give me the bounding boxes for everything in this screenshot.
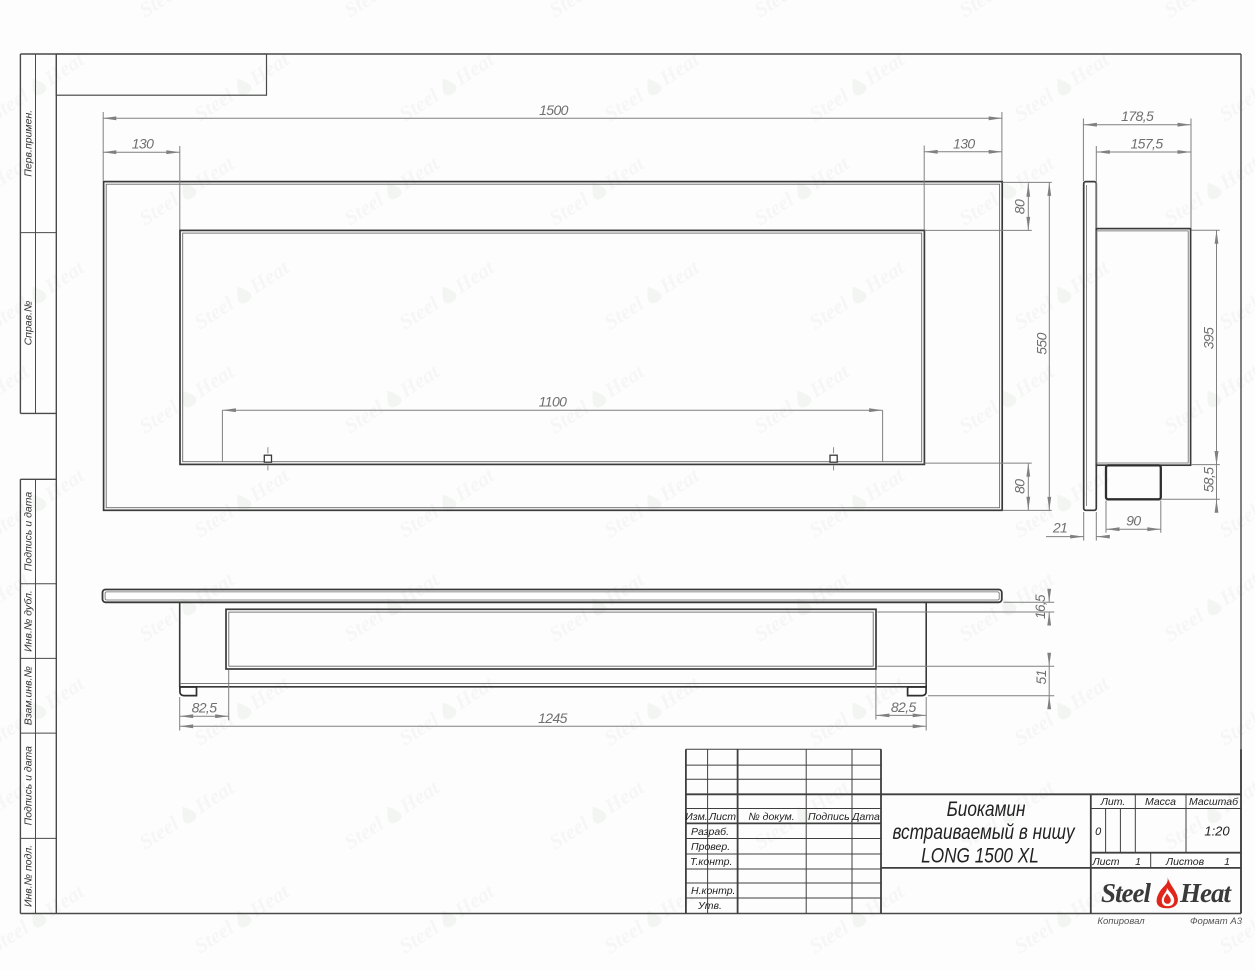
svg-text:Перв.примен.: Перв.примен. bbox=[23, 110, 35, 177]
svg-text:Подпись и дата: Подпись и дата bbox=[23, 746, 35, 826]
svg-text:№ докум.: № докум. bbox=[748, 811, 794, 823]
svg-text:1100: 1100 bbox=[539, 394, 568, 410]
svg-text:0: 0 bbox=[1095, 826, 1102, 838]
svg-text:Провер.: Провер. bbox=[691, 841, 730, 853]
svg-text:Лист: Лист bbox=[1091, 856, 1119, 868]
svg-text:Биокамин: Биокамин bbox=[947, 799, 1026, 822]
svg-text:Heat: Heat bbox=[1179, 878, 1232, 908]
svg-text:395: 395 bbox=[1200, 327, 1216, 349]
svg-text:Формат А3: Формат А3 bbox=[1190, 916, 1243, 927]
svg-text:21: 21 bbox=[1052, 520, 1067, 536]
svg-text:Взам.инв.№: Взам.инв.№ bbox=[23, 666, 35, 725]
svg-text:Лист: Лист bbox=[708, 811, 736, 823]
svg-text:80: 80 bbox=[1011, 199, 1027, 214]
svg-text:82,5: 82,5 bbox=[192, 700, 218, 716]
svg-text:550: 550 bbox=[1034, 332, 1050, 354]
svg-text:Масса: Масса bbox=[1145, 796, 1176, 808]
svg-text:Steel: Steel bbox=[1101, 878, 1151, 908]
svg-text:130: 130 bbox=[132, 136, 154, 152]
svg-text:130: 130 bbox=[953, 135, 975, 151]
svg-text:90: 90 bbox=[1126, 513, 1141, 529]
svg-text:Масштаб: Масштаб bbox=[1189, 796, 1239, 808]
svg-text:встраиваемый в нишу: встраиваемый в нишу bbox=[892, 822, 1075, 845]
svg-text:1: 1 bbox=[1224, 856, 1230, 868]
svg-text:1: 1 bbox=[1135, 856, 1141, 868]
svg-text:Справ.№: Справ.№ bbox=[23, 301, 35, 346]
svg-text:Дата: Дата bbox=[851, 811, 880, 823]
svg-text:157,5: 157,5 bbox=[1130, 136, 1163, 152]
svg-text:Листов: Листов bbox=[1165, 856, 1205, 868]
svg-text:1500: 1500 bbox=[539, 102, 569, 118]
svg-text:178,5: 178,5 bbox=[1121, 108, 1154, 124]
svg-text:Подпись и дата: Подпись и дата bbox=[23, 492, 35, 572]
svg-text:80: 80 bbox=[1011, 479, 1027, 494]
svg-text:Т.контр.: Т.контр. bbox=[690, 856, 732, 868]
svg-text:16,5: 16,5 bbox=[1033, 594, 1048, 619]
svg-text:LONG 1500 XL: LONG 1500 XL bbox=[921, 845, 1039, 868]
svg-text:Изм.: Изм. bbox=[685, 811, 707, 823]
svg-text:1:20: 1:20 bbox=[1204, 824, 1230, 839]
svg-text:82,5: 82,5 bbox=[891, 699, 917, 715]
svg-text:Инв.№ подл.: Инв.№ подл. bbox=[23, 845, 35, 907]
svg-text:51: 51 bbox=[1033, 670, 1049, 684]
svg-text:Утв.: Утв. bbox=[697, 900, 722, 912]
svg-text:58,5: 58,5 bbox=[1200, 467, 1216, 493]
svg-text:1245: 1245 bbox=[538, 710, 568, 726]
svg-text:Лит.: Лит. bbox=[1100, 796, 1126, 808]
svg-text:Разраб.: Разраб. bbox=[691, 826, 729, 838]
svg-text:Н.контр.: Н.контр. bbox=[691, 885, 735, 897]
svg-text:Инв.№ дубл.: Инв.№ дубл. bbox=[23, 590, 35, 652]
svg-text:Подпись: Подпись bbox=[808, 811, 850, 823]
svg-text:Копировал: Копировал bbox=[1097, 916, 1145, 927]
